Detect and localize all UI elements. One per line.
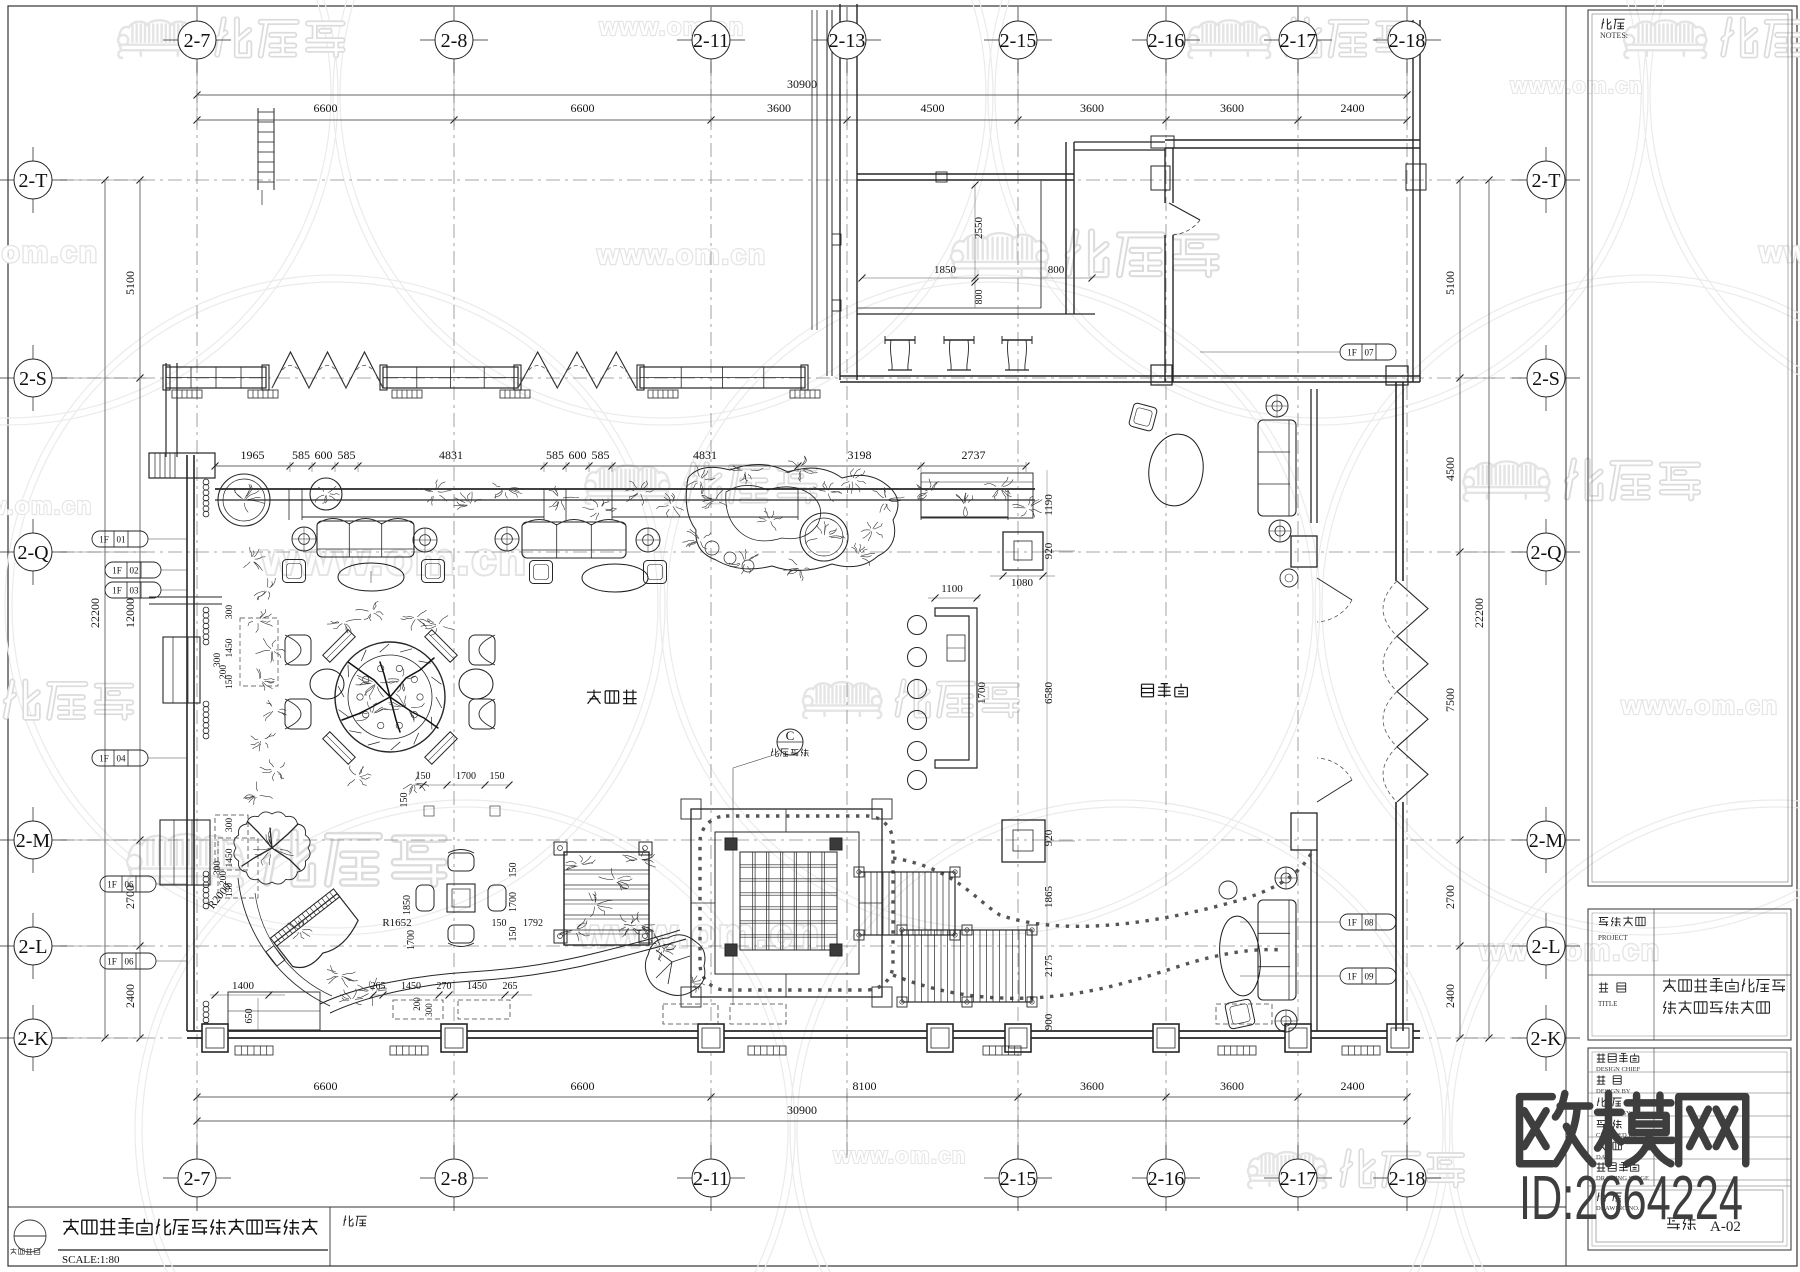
svg-text:SCALE:1:80: SCALE:1:80 (62, 1254, 120, 1266)
svg-text:200: 200 (219, 665, 229, 680)
svg-text:1700: 1700 (406, 930, 417, 950)
svg-text:1700: 1700 (976, 682, 988, 705)
svg-text:2-15: 2-15 (1000, 1168, 1037, 1190)
svg-text:2-M: 2-M (1529, 830, 1564, 852)
svg-text:2-8: 2-8 (441, 30, 468, 52)
svg-text:2175: 2175 (1043, 955, 1055, 978)
svg-text:30900: 30900 (787, 1103, 817, 1117)
svg-text:920: 920 (1043, 542, 1055, 559)
svg-text:2-18: 2-18 (1389, 1168, 1426, 1190)
svg-text:2-13: 2-13 (829, 30, 866, 52)
svg-text:2-8: 2-8 (441, 1168, 468, 1190)
svg-text:2700: 2700 (1443, 885, 1457, 909)
svg-text:2-15: 2-15 (1000, 30, 1037, 52)
svg-text:1100: 1100 (941, 583, 963, 595)
svg-text:1700: 1700 (508, 892, 519, 912)
svg-text:06: 06 (125, 880, 135, 890)
svg-text:1450: 1450 (467, 981, 487, 992)
svg-text:150: 150 (490, 771, 505, 782)
svg-text:1F: 1F (99, 754, 109, 764)
svg-text:5100: 5100 (123, 271, 137, 295)
svg-text:2400: 2400 (1443, 984, 1457, 1008)
svg-text:2-16: 2-16 (1148, 1168, 1185, 1190)
svg-text:600: 600 (315, 448, 333, 462)
svg-text:C: C (786, 728, 795, 743)
svg-text:1F: 1F (107, 957, 117, 967)
svg-text:www.om.cn: www.om.cn (596, 239, 767, 270)
svg-text:TITLE: TITLE (1598, 1000, 1617, 1008)
svg-text:3600: 3600 (1080, 101, 1104, 115)
svg-text:01: 01 (117, 535, 126, 545)
svg-text:2-S: 2-S (1532, 368, 1560, 390)
svg-text:3198: 3198 (848, 448, 872, 462)
svg-text:1F: 1F (99, 535, 109, 545)
svg-text:07: 07 (1365, 348, 1375, 358)
svg-text:900: 900 (1043, 1013, 1055, 1030)
svg-text:800: 800 (974, 290, 985, 305)
svg-text:www.om.cn: www.om.cn (0, 236, 99, 269)
svg-text:3600: 3600 (1220, 1079, 1244, 1093)
svg-text:585: 585 (592, 448, 610, 462)
svg-text:2-Q: 2-Q (1530, 542, 1562, 564)
svg-text:www.om.cn: www.om.cn (1620, 690, 1779, 720)
svg-text:4831: 4831 (439, 448, 463, 462)
svg-text:1F: 1F (112, 566, 122, 576)
svg-text:300: 300 (424, 1003, 434, 1017)
svg-text:7500: 7500 (1443, 688, 1457, 712)
svg-text:2-16: 2-16 (1148, 30, 1185, 52)
svg-text:4831: 4831 (693, 448, 717, 462)
svg-text:2-M: 2-M (16, 830, 51, 852)
svg-text:1965: 1965 (241, 448, 265, 462)
svg-text:6600: 6600 (571, 1079, 595, 1093)
svg-text:03: 03 (130, 586, 140, 596)
svg-text:6600: 6600 (314, 1079, 338, 1093)
svg-text:2-K: 2-K (17, 1028, 49, 1050)
svg-text:2-T: 2-T (1532, 170, 1561, 192)
svg-text:600: 600 (569, 448, 587, 462)
svg-text:30900: 30900 (787, 77, 817, 91)
svg-text:3600: 3600 (1220, 101, 1244, 115)
svg-text:1080: 1080 (1011, 577, 1034, 589)
svg-text:22200: 22200 (1472, 598, 1486, 628)
svg-text:2400: 2400 (1341, 101, 1365, 115)
svg-text:www.om.cn: www.om.cn (1758, 236, 1800, 269)
svg-text:www.om.cn: www.om.cn (1509, 73, 1643, 98)
svg-text:150: 150 (508, 863, 519, 878)
svg-text:2-17: 2-17 (1280, 30, 1317, 52)
svg-text:1792: 1792 (523, 918, 543, 929)
svg-text:1F: 1F (107, 880, 117, 890)
svg-text:300: 300 (225, 818, 235, 833)
svg-text:2-L: 2-L (19, 936, 48, 958)
svg-text:12000: 12000 (123, 598, 137, 628)
svg-text:200: 200 (412, 997, 422, 1011)
svg-text:4500: 4500 (1443, 457, 1457, 481)
svg-text:3600: 3600 (1080, 1079, 1104, 1093)
svg-text:2-K: 2-K (1530, 1028, 1562, 1050)
svg-text:2-18: 2-18 (1389, 30, 1426, 52)
svg-text:1450: 1450 (225, 638, 235, 657)
svg-text:2550: 2550 (973, 217, 985, 240)
svg-text:2400: 2400 (123, 984, 137, 1008)
svg-text:4500: 4500 (921, 101, 945, 115)
svg-text:3600: 3600 (767, 101, 791, 115)
svg-text:920: 920 (1043, 829, 1055, 846)
svg-text:1700: 1700 (456, 771, 476, 782)
svg-text:1F: 1F (1347, 972, 1357, 982)
svg-text:150: 150 (508, 927, 519, 942)
svg-text:800: 800 (1048, 264, 1065, 276)
svg-text:1400: 1400 (232, 980, 255, 992)
svg-text:8100: 8100 (853, 1079, 877, 1093)
svg-text:1190: 1190 (1043, 494, 1055, 516)
svg-text:06: 06 (125, 957, 135, 967)
svg-text:2-S: 2-S (19, 368, 47, 390)
svg-text:150: 150 (399, 793, 410, 808)
svg-text:270: 270 (437, 981, 452, 992)
svg-text:1F: 1F (1347, 918, 1357, 928)
svg-text:www.om.cn: www.om.cn (0, 493, 93, 520)
svg-text:1850: 1850 (402, 895, 413, 915)
svg-text:2-11: 2-11 (693, 1168, 729, 1190)
svg-text:22200: 22200 (88, 598, 102, 628)
svg-text:150: 150 (416, 771, 431, 782)
svg-text:6600: 6600 (571, 101, 595, 115)
svg-text:PROJECT: PROJECT (1598, 934, 1628, 942)
svg-text:6600: 6600 (314, 101, 338, 115)
svg-text:1450: 1450 (225, 848, 235, 867)
svg-text:2-T: 2-T (19, 170, 48, 192)
svg-text:150: 150 (492, 918, 507, 929)
svg-text:www.om.cn: www.om.cn (1478, 934, 1661, 967)
svg-text:265: 265 (371, 981, 386, 992)
svg-text:5100: 5100 (1443, 271, 1457, 295)
svg-text:1865: 1865 (1043, 886, 1055, 909)
svg-text:DESIGN BY: DESIGN BY (1596, 1088, 1631, 1095)
svg-text:ID:2664224: ID:2664224 (1519, 1164, 1743, 1233)
svg-text:2-Q: 2-Q (17, 542, 49, 564)
svg-text:NOTES:: NOTES: (1600, 31, 1628, 40)
svg-text:2-7: 2-7 (184, 30, 211, 52)
svg-text:585: 585 (292, 448, 310, 462)
svg-text:1850: 1850 (934, 264, 957, 276)
svg-text:585: 585 (338, 448, 356, 462)
svg-text:DESIGN CHIEF: DESIGN CHIEF (1596, 1066, 1641, 1073)
svg-text:2-11: 2-11 (693, 30, 729, 52)
svg-text:1F: 1F (112, 586, 122, 596)
svg-text:2-17: 2-17 (1280, 1168, 1317, 1190)
svg-text:R1652: R1652 (382, 917, 411, 929)
svg-text:08: 08 (1365, 918, 1375, 928)
svg-text:02: 02 (130, 566, 139, 576)
svg-text:6580: 6580 (1043, 682, 1055, 705)
svg-text:2737: 2737 (962, 448, 986, 462)
svg-text:04: 04 (117, 754, 127, 764)
svg-text:09: 09 (1365, 972, 1375, 982)
svg-text:2-7: 2-7 (184, 1168, 211, 1190)
svg-text:265: 265 (503, 981, 518, 992)
svg-text:2400: 2400 (1341, 1079, 1365, 1093)
svg-text:1F: 1F (1347, 348, 1357, 358)
svg-text:1450: 1450 (401, 981, 421, 992)
svg-text:www.om.cn: www.om.cn (832, 1143, 966, 1168)
svg-text:2-L: 2-L (1532, 936, 1561, 958)
svg-text:585: 585 (546, 448, 564, 462)
svg-text:300: 300 (225, 605, 235, 620)
